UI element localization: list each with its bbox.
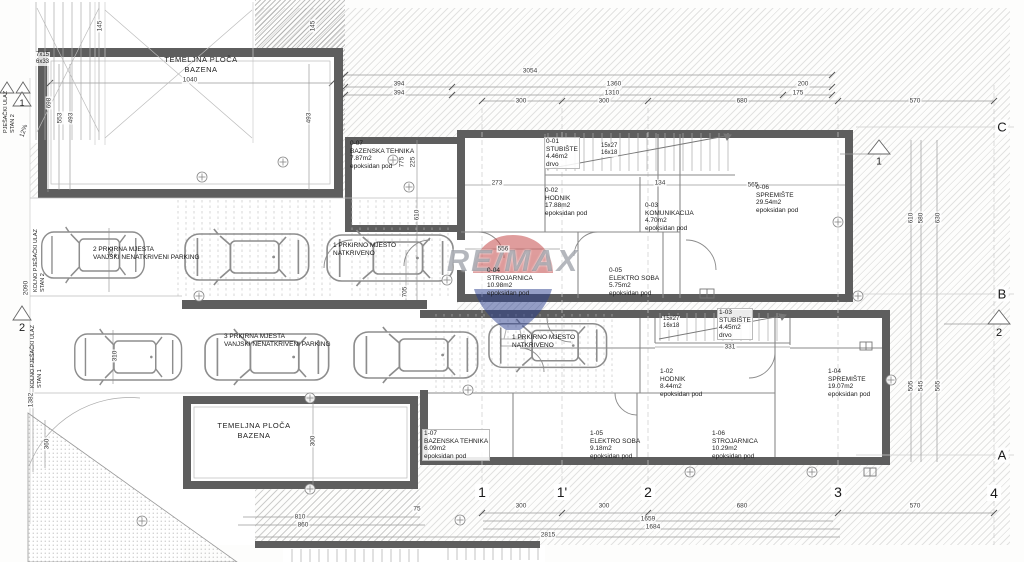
dimension-label: 134 [654,180,667,187]
grid-col-3: 3 [831,484,845,500]
grid-row-A: A [996,448,1009,463]
dimension-label: 610 [908,212,915,225]
dimension-label: 394 [393,81,406,88]
room-label-1-07: 1-07BAZENSKA TEHNIKA6.09m2epoksidan pod [423,430,489,460]
room-label-0-05: 0-05ELEKTRO SOBA5.75m2epoksidan pod [609,267,659,297]
below-pool-area [183,489,255,545]
access-label-bottom: KOLNO PJEŠAČKI ULAZSTAN 1 [30,325,43,388]
dimension-label: 698 [46,97,53,110]
room-label-0-07: 0-07BAZENSKA TEHNIKA7.87m2epoksidan pod [350,140,414,170]
dimension-label: 580 [918,212,925,225]
dimension-label: 12% [18,123,29,139]
dimension-label: 556 [497,246,510,253]
dimension-label: 310 [112,350,119,363]
dimension-label: 505 [908,380,915,393]
dimension-label: 300 [310,435,317,448]
grid-col-2: 2 [641,484,655,500]
dimension-label: 630 [935,212,942,225]
dimension-label: 610 [414,209,421,222]
grid-col-1: 1 [475,484,489,500]
dimension-label: 680 [736,503,749,510]
section-marker-right-2: 2 [996,327,1002,339]
pool-top-label: TEMELJNA PLOČABAZENA [155,55,247,74]
room-label-0-03: 0-03KOMUNIKACIJA4.70m2epoksidan pod [645,202,694,232]
dimension-label: 145 [97,20,104,33]
dimension-label: 2815 [540,532,556,539]
section-marker-right-1: 1 [876,157,882,168]
section-marker-left-1: 1 [19,98,24,108]
dimension-label: 705 [402,286,409,299]
dimension-label: 810 [294,514,307,521]
dimension-label: 300 [515,98,528,105]
dimension-label: 300 [598,98,611,105]
dimension-label: 300 [515,503,528,510]
grid-row-C: C [995,120,1008,135]
dimension-label: 273 [491,180,504,187]
pool-bottom-label: TEMELJNA PLOČABAZENA [208,421,300,440]
dimension-label: 1684 [645,524,661,531]
dimension-label: 493 [306,112,313,125]
dimension-label: 300 [598,503,611,510]
parking-label-covered-1: 1 PRKIRNO MJESTONATKRIVENO [512,334,575,350]
dimension-label: 1310 [604,90,620,97]
dimension-label: 570 [909,98,922,105]
dimension-label: 565 [935,380,942,393]
pool-bottom-walls [183,396,418,489]
room-label-1-06: 1-06STROJARNICA10.29m2epoksidan pod [712,430,758,460]
dimension-label: 493 [68,112,75,125]
room-label-0-01: 0-01STUBIŠTE4.46m2drvo [545,138,579,168]
dimension-label: 860 [297,522,310,529]
grid-col-4: 4 [987,485,1001,501]
grid-row-B: B [996,287,1009,302]
dimension-label: 394 [393,90,406,97]
room-label-1-03: 1-03STUBIŠTE4.45m2drvo [718,309,752,339]
floor-plan-sheet: RE/MAX TEMELJNA PLOČABAZENA TEMELJNA PLO… [0,0,1024,562]
room-label-1-02: 1-02HODNIK8.44m2epoksidan pod [660,368,702,398]
dimension-label: 1659 [640,516,656,523]
dimension-label: 680 [736,98,749,105]
section-marker-left-2: 2 [19,322,25,334]
garage-opening [420,318,429,390]
left-bottom-area [30,396,183,562]
room-label-1-04: 1-04SPREMIŠTE19.07m2epoksidan pod [828,368,870,398]
dimension-label: 145 [310,20,317,33]
driveway-row2 [30,310,420,396]
dimension-label: 331 [724,344,737,351]
access-label-top: PJEŠAČKI ULAZSTAN 2 [3,91,16,133]
room-label-1-05: 1-05ELEKTRO SOBA9.18m2epoksidan pod [590,430,640,460]
dimension-label: 545 [918,380,925,393]
retaining-wall [182,300,427,309]
stair-note-entry: 7x156x33 [35,52,50,66]
stair-note-level0: 15x2716x18 [600,143,618,157]
room-label-0-04: 0-04STROJARNICA10.98m2epoksidan pod [487,267,533,297]
bottom-wall [255,541,540,548]
hatch-below-pool [255,490,420,541]
level1-block-walls [420,310,890,465]
dimension-label: 175 [792,90,805,97]
parking-label-covered-0: 1 PRKIRNO MJESTONATKRIVENO [333,242,396,258]
dimension-label: 200 [797,81,810,88]
parking-label-3-spots: 3 PRKIRNA MJESTAVANJSKI NENATKRIVENI PAR… [224,333,331,349]
dimension-label: 553 [57,112,64,125]
dimension-label: 1382 [28,392,35,408]
parking-label-2-spots: 2 PRKIRNA MJESTAVANJSKI NENATKRIVENI PAR… [93,246,200,262]
dimension-label: 3054 [522,68,538,75]
access-label-mid: KOLNO PJEŠAČKI ULAZSTAN 2 [33,229,46,292]
grid-col-1p: 1' [554,484,570,500]
dimension-label: 570 [909,503,922,510]
dimension-label: 2090 [23,280,30,296]
dimension-label: 1360 [606,81,622,88]
stair-note-level1: 15x2716x18 [662,316,680,330]
dimension-label: 75 [412,506,421,513]
room-label-0-02: 0-02HODNIK17.88m2epoksidan pod [545,187,587,217]
dimension-label: 360 [44,438,51,451]
dimension-label: 1040 [182,77,198,84]
room-label-0-06: 0-06SPREMIŠTE29.54m2epoksidan pod [756,184,798,214]
